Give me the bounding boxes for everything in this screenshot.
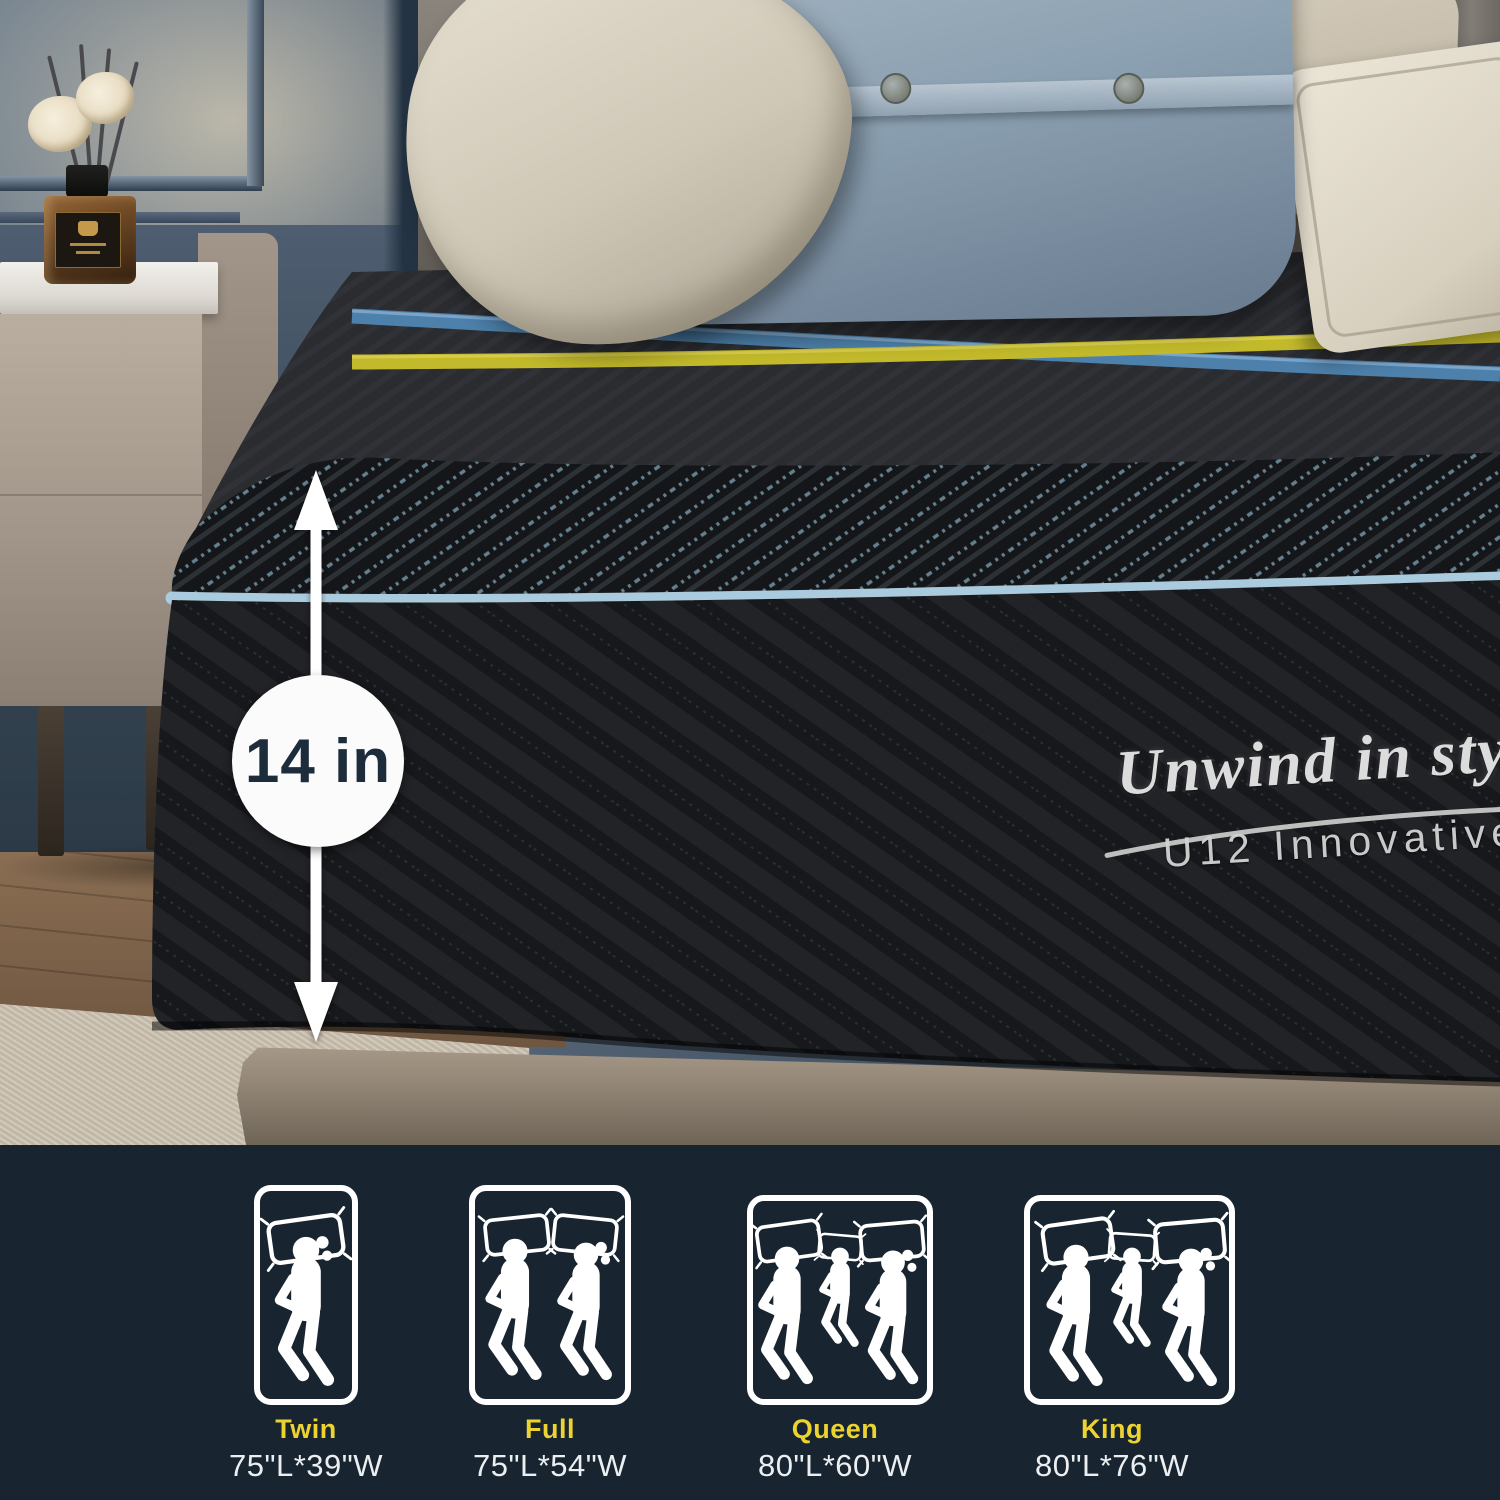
mattress-quilted-band [172,452,1500,599]
size-dimensions: 80"L*60"W [745,1448,925,1484]
height-value: 14 in [245,726,391,797]
size-name: Twin [221,1414,391,1445]
size-options-panel: Twin 75"L*39"W Full 75"L*54"W [0,1145,1500,1500]
pillow-flange-stitch [1294,55,1500,339]
size-card-full: Full 75"L*54"W [465,1183,635,1484]
twin-one-sleeper-icon [252,1183,360,1407]
size-dimensions: 80"L*76"W [1022,1448,1202,1484]
king-family-sleepers-icon [1022,1193,1237,1407]
size-dimensions: 75"L*54"W [465,1448,635,1484]
size-card-king: King 80"L*76"W [1022,1183,1202,1484]
size-name: Queen [745,1414,925,1445]
white-flanged-pillow [1277,38,1500,356]
size-dimensions: 75"L*39"W [221,1448,391,1484]
size-name: Full [465,1414,635,1445]
size-card-queen: Queen 80"L*60"W [745,1183,925,1484]
queen-family-sleepers-icon [745,1193,935,1407]
full-two-sleepers-icon [467,1183,633,1407]
height-badge: 14 in [232,675,404,847]
bedroom-photo: Unwind in style U12 Innovative 14 in [0,0,1500,1145]
mattress-branding: Unwind in style U12 Innovative [1028,702,1500,982]
product-image: Unwind in style U12 Innovative 14 in Twi… [0,0,1500,1500]
size-name: King [1022,1414,1202,1445]
size-card-twin: Twin 75"L*39"W [221,1183,391,1484]
